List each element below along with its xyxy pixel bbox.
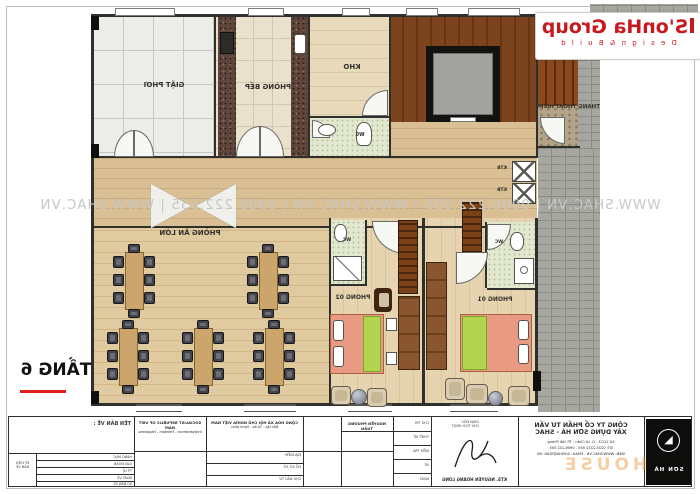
sig-header-line2: CHỦ TỊCH HĐQT xyxy=(435,424,479,428)
chair xyxy=(247,274,258,286)
chair xyxy=(122,320,134,329)
table-top xyxy=(125,252,144,310)
company-addr: Số 12/13 - Q. Lê Chân - TP. Hải Phòng xyxy=(520,440,642,444)
wc-shower-drain xyxy=(520,266,528,274)
logo-box: S'onHa Group D e s i g n & B u i l d xyxy=(535,12,700,60)
chair xyxy=(213,332,224,344)
tb-row-label: CHỦ TRÌ xyxy=(397,421,429,425)
ball-stool xyxy=(488,391,503,406)
wall-corridor-top xyxy=(93,156,538,158)
window xyxy=(342,8,370,16)
wall-kitchen-storage xyxy=(308,16,310,158)
title-block: TÊN BẢN VẼ : KÝ HIỆU BẢN VẼ HẠNG MỤC GIA… xyxy=(8,416,692,487)
armchair xyxy=(445,378,465,400)
logo-tagline: D e s i g n & B u i l d xyxy=(536,39,700,47)
motto-en: SOCIALIST REPUBLIC OF VIET NAM Independe… xyxy=(135,420,205,434)
chair xyxy=(284,332,295,344)
pier xyxy=(91,144,99,158)
wall-wc2-side xyxy=(365,220,367,286)
chair xyxy=(284,368,295,380)
company-name-line2: XÂY DỰNG SƠN HÀ - SHAC xyxy=(520,429,642,436)
chair xyxy=(128,244,140,253)
orange-watermark: HOUSE xyxy=(549,455,659,475)
drawing-name-label: TÊN BẢN VẼ : xyxy=(67,421,131,427)
tb-divider xyxy=(518,417,519,486)
table-top xyxy=(265,328,284,386)
brand-emblem-icon: ◢ xyxy=(657,429,680,452)
window xyxy=(244,404,296,412)
chair xyxy=(113,292,124,304)
shaft-label: KTB xyxy=(494,167,510,172)
motto-vn: CỘNG HÒA XÃ HỘI CHỦ NGHĨA VIỆT NAM Độc l… xyxy=(207,420,302,429)
chair xyxy=(268,320,280,329)
room-label-kitchen: PHÒNG BẾP xyxy=(228,84,308,91)
tb-row-label: HỒ SƠ SỐ xyxy=(261,465,301,469)
chair xyxy=(253,332,264,344)
window xyxy=(248,8,284,16)
bed1-pillow xyxy=(518,320,529,340)
pier xyxy=(91,16,99,30)
tv-cabinet-inner xyxy=(379,293,389,307)
window xyxy=(115,8,175,16)
wall-laundry-kitchen xyxy=(214,16,216,158)
company-phone: ĐT: 0225.2222.555 - 0906.222.555 xyxy=(520,446,642,450)
wc-toilet xyxy=(510,232,524,251)
dining-table-group xyxy=(252,320,296,394)
tb-line xyxy=(393,445,431,446)
bed2-pillow xyxy=(333,346,344,367)
wc-sink xyxy=(318,124,336,136)
bed1-pillow xyxy=(518,344,529,364)
wall-wc1-bottom xyxy=(487,288,537,290)
kitchen-stove xyxy=(220,32,234,54)
bed1-blanket xyxy=(462,316,487,370)
architect-name: KTS. NGUYỄN HOÀNG LONG xyxy=(433,477,516,482)
chair xyxy=(182,368,193,380)
room-label-dining: PHÒNG ĂN LỚN xyxy=(150,230,230,237)
pier xyxy=(91,391,99,404)
tb-divider xyxy=(644,417,645,486)
chair xyxy=(182,332,193,344)
tb-line xyxy=(134,451,206,452)
elevator-door xyxy=(450,117,476,122)
dining-table-group xyxy=(246,244,290,318)
tb-row-label: CHỦ ĐẦU TƯ xyxy=(261,477,301,481)
company-name-line1: CÔNG TY CỔ PHẦN TƯ VẤN xyxy=(520,422,642,429)
chair xyxy=(213,350,224,362)
floor-label-underline xyxy=(20,390,66,393)
floor-plan-sheet: KTB KTB xyxy=(0,0,700,494)
room-label-storage: KHO xyxy=(324,64,380,71)
tb-line xyxy=(393,473,431,474)
chair xyxy=(128,309,140,318)
table-top xyxy=(119,328,138,386)
kitchen-sink xyxy=(294,34,306,54)
stair-flight xyxy=(398,220,418,294)
logo-mark-icon xyxy=(690,18,694,33)
room-label-wc-bedroom2: WC xyxy=(340,239,354,244)
ball-stool xyxy=(351,389,367,405)
armchair xyxy=(466,384,488,404)
motto-en-line1: SOCIALIST REPUBLIC OF VIET NAM xyxy=(135,420,205,430)
brick-strip-upper xyxy=(578,48,600,148)
armchair xyxy=(508,386,530,406)
dining-table-group xyxy=(181,320,225,394)
chair xyxy=(262,244,274,253)
nightstand xyxy=(386,352,397,365)
tb-row-label: ĐỊA ĐIỂM xyxy=(261,453,301,457)
wall-bedroom2-bedroom1 xyxy=(422,218,425,405)
chair xyxy=(138,368,149,380)
chair xyxy=(278,292,289,304)
window xyxy=(406,8,438,16)
motto-en-line2: Independence - Freedom - Happiness xyxy=(135,430,205,434)
dining-table-group xyxy=(106,320,150,394)
chair xyxy=(268,385,280,394)
signature-header: GIÁM ĐỐC CHỦ TỊCH HĐQT xyxy=(435,420,479,429)
tb-divider xyxy=(393,417,394,486)
wall-wc2-bottom xyxy=(330,284,367,286)
tb-row-label: SỐ BẢN VẼ xyxy=(89,482,132,486)
chair xyxy=(122,385,134,394)
investor-name: NGUYỄN PHƯƠNG TUẤN xyxy=(342,421,392,431)
chair xyxy=(253,350,264,362)
company-info: CÔNG TY CỔ PHẦN TƯ VẤN XÂY DỰNG SƠN HÀ -… xyxy=(520,422,642,456)
chair xyxy=(253,368,264,380)
wardrobe-bedroom2 xyxy=(398,296,420,370)
chair xyxy=(144,292,155,304)
chair xyxy=(113,256,124,268)
chair xyxy=(278,274,289,286)
room-label-bedroom1: PHÒNG 01 xyxy=(473,297,517,303)
pier xyxy=(533,371,541,391)
chair xyxy=(182,350,193,362)
tb-row-label: TỶ LỆ xyxy=(89,469,132,473)
wall-escape-bottom xyxy=(538,146,580,148)
table-top xyxy=(194,328,213,386)
window xyxy=(450,404,498,412)
tb-row-label: NGÀY xyxy=(397,477,429,481)
signature-icon xyxy=(449,431,501,473)
chair xyxy=(247,256,258,268)
watermark-row: WWW.SHAC.VN | 0906.222.555 | WWW.SHAC.VN… xyxy=(0,196,700,214)
chair xyxy=(138,332,149,344)
tb-row-label: NGÀY VẼ xyxy=(89,476,132,480)
chair xyxy=(213,368,224,380)
chair xyxy=(197,320,209,329)
wall-storage-hall xyxy=(389,16,391,158)
tb-row-label: HẠNG MỤC xyxy=(89,455,132,459)
floor-label: TẦNG 6 xyxy=(10,362,102,380)
tb-line xyxy=(206,475,303,476)
chair xyxy=(107,350,118,362)
tb-line xyxy=(393,459,431,460)
room-label-wc-bedroom1: WC xyxy=(492,241,506,246)
dining-table-group xyxy=(112,244,156,318)
wc-bathtub xyxy=(333,256,362,281)
sonha-logo: S'onHa Group D e s i g n & B u i l d xyxy=(536,15,700,61)
elevator-lobby-floor xyxy=(390,120,538,158)
tb-line xyxy=(393,431,431,432)
tb-line xyxy=(206,451,303,452)
chair xyxy=(144,256,155,268)
chair xyxy=(144,274,155,286)
elevator-car xyxy=(433,53,493,115)
wardrobe-bedroom1 xyxy=(426,262,447,370)
tb-row-label: THIẾT KẾ xyxy=(397,435,429,439)
chair xyxy=(197,385,209,394)
tb-divider xyxy=(431,417,432,486)
tb-corner-note: KÝ HIỆU BẢN VẼ xyxy=(11,461,34,470)
bed2-blanket xyxy=(363,316,381,372)
table-top xyxy=(259,252,278,310)
armchair xyxy=(367,388,387,407)
tb-row-label: KIỂM TRA xyxy=(397,449,429,453)
room-label-laundry: GIẶT PHƠI xyxy=(131,82,197,89)
window xyxy=(468,8,520,16)
wall-storage-wc xyxy=(310,116,390,118)
nightstand xyxy=(386,318,397,331)
bed2-pillow xyxy=(333,320,344,341)
chair xyxy=(138,350,149,362)
corner-note-line: BẢN VẼ xyxy=(11,465,34,469)
chair xyxy=(113,274,124,286)
room-label-wc-kitchen: WC xyxy=(352,133,368,138)
motto-vn-line2: Độc lập - Tự do - Hạnh phúc xyxy=(207,425,302,429)
logo-name: S'onHa Group xyxy=(542,16,689,38)
room-label-bedroom2: PHÒNG 02 xyxy=(331,295,375,301)
tb-line xyxy=(303,451,341,452)
room-label-escape: THANG THOÁT HIỂM xyxy=(534,105,604,111)
chair xyxy=(262,309,274,318)
chair xyxy=(107,332,118,344)
tb-line xyxy=(206,463,303,464)
tb-line xyxy=(341,451,393,452)
armchair xyxy=(331,386,351,405)
chair xyxy=(278,256,289,268)
tb-row-label: GIAI ĐOẠN xyxy=(89,462,132,466)
shaft-label: KTB xyxy=(494,189,510,194)
window xyxy=(136,404,182,412)
tb-row-label: VẼ xyxy=(397,463,429,467)
shaft-box xyxy=(512,161,536,182)
chair xyxy=(107,368,118,380)
brand-logo-box: ◢ SƠN HÀ xyxy=(646,419,691,485)
tb-line xyxy=(341,431,393,432)
chair xyxy=(247,292,258,304)
brick-strip-side xyxy=(538,148,600,412)
chair xyxy=(284,350,295,362)
